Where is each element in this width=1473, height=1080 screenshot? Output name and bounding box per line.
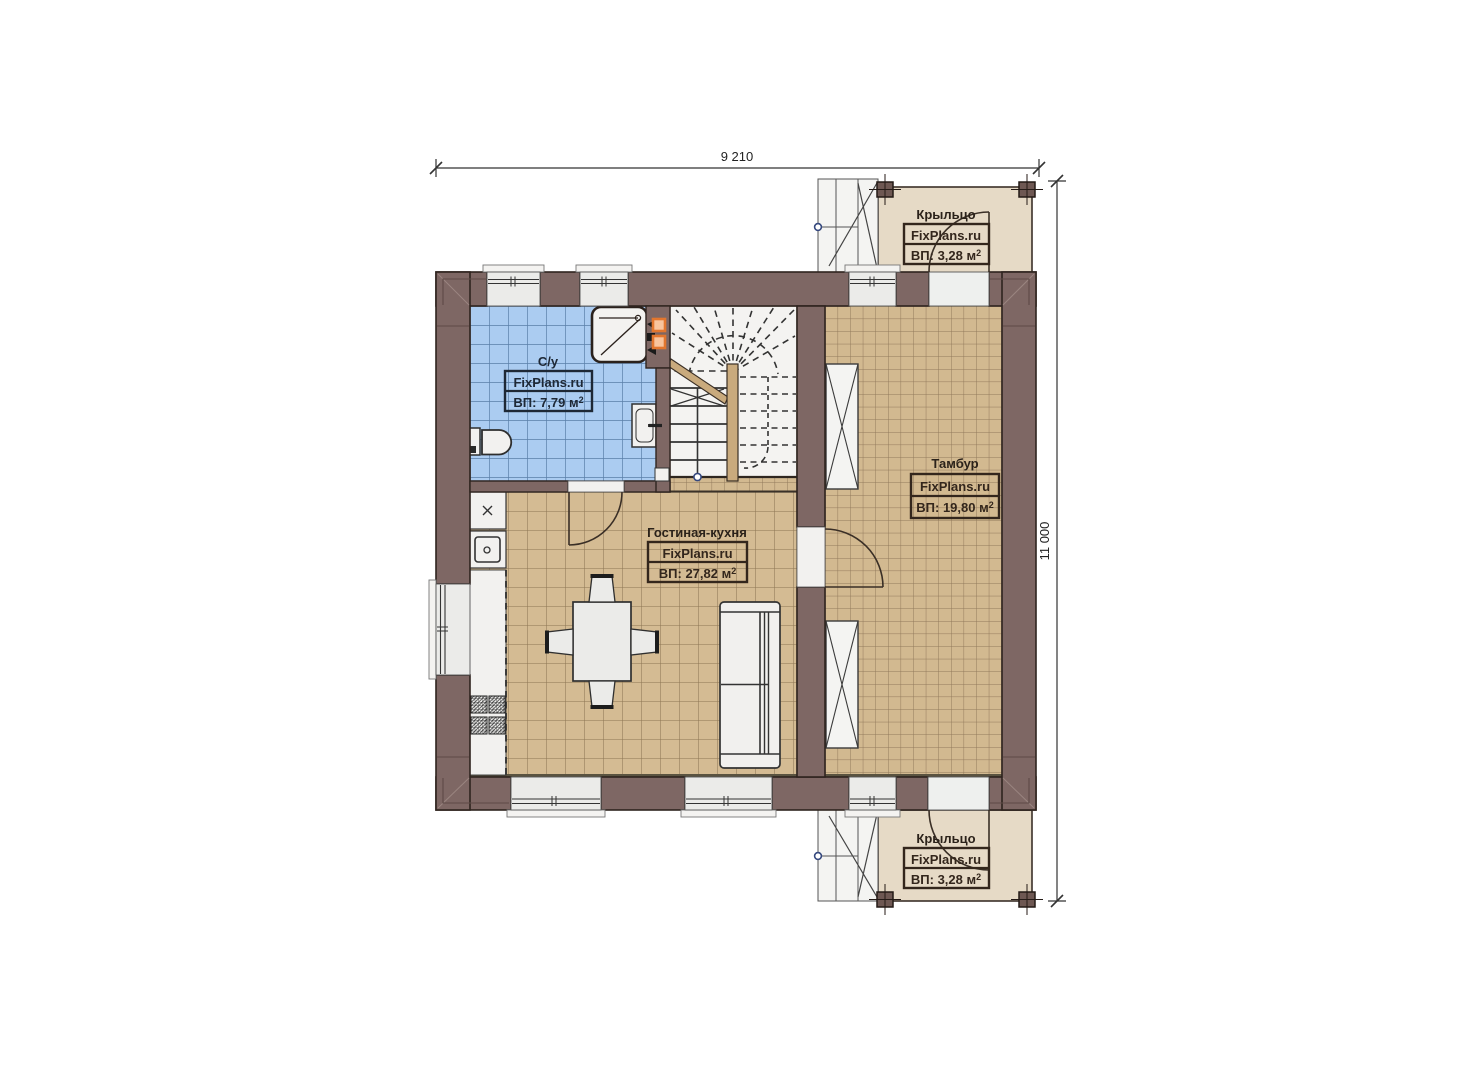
svg-text:FixPlans.ru: FixPlans.ru [920, 479, 990, 494]
svg-text:9 210: 9 210 [721, 149, 754, 164]
svg-text:Крыльцо: Крыльцо [916, 207, 975, 222]
svg-text:FixPlans.ru: FixPlans.ru [513, 375, 583, 390]
svg-text:11 000: 11 000 [1037, 522, 1052, 561]
svg-text:С/у: С/у [538, 354, 559, 369]
svg-text:ВП: 3,28 м2: ВП: 3,28 м2 [911, 872, 981, 887]
svg-text:Крыльцо: Крыльцо [916, 831, 975, 846]
svg-text:Гостиная-кухня: Гостиная-кухня [647, 525, 747, 540]
svg-text:ВП: 19,80 м2: ВП: 19,80 м2 [916, 500, 993, 515]
svg-text:FixPlans.ru: FixPlans.ru [911, 228, 981, 243]
svg-text:ВП: 7,79 м2: ВП: 7,79 м2 [513, 395, 583, 410]
svg-text:FixPlans.ru: FixPlans.ru [911, 852, 981, 867]
svg-text:ВП: 3,28 м2: ВП: 3,28 м2 [911, 248, 981, 263]
svg-text:ВП: 27,82 м2: ВП: 27,82 м2 [659, 566, 736, 581]
svg-text:FixPlans.ru: FixPlans.ru [662, 546, 732, 561]
svg-text:Тамбур: Тамбур [931, 456, 978, 471]
